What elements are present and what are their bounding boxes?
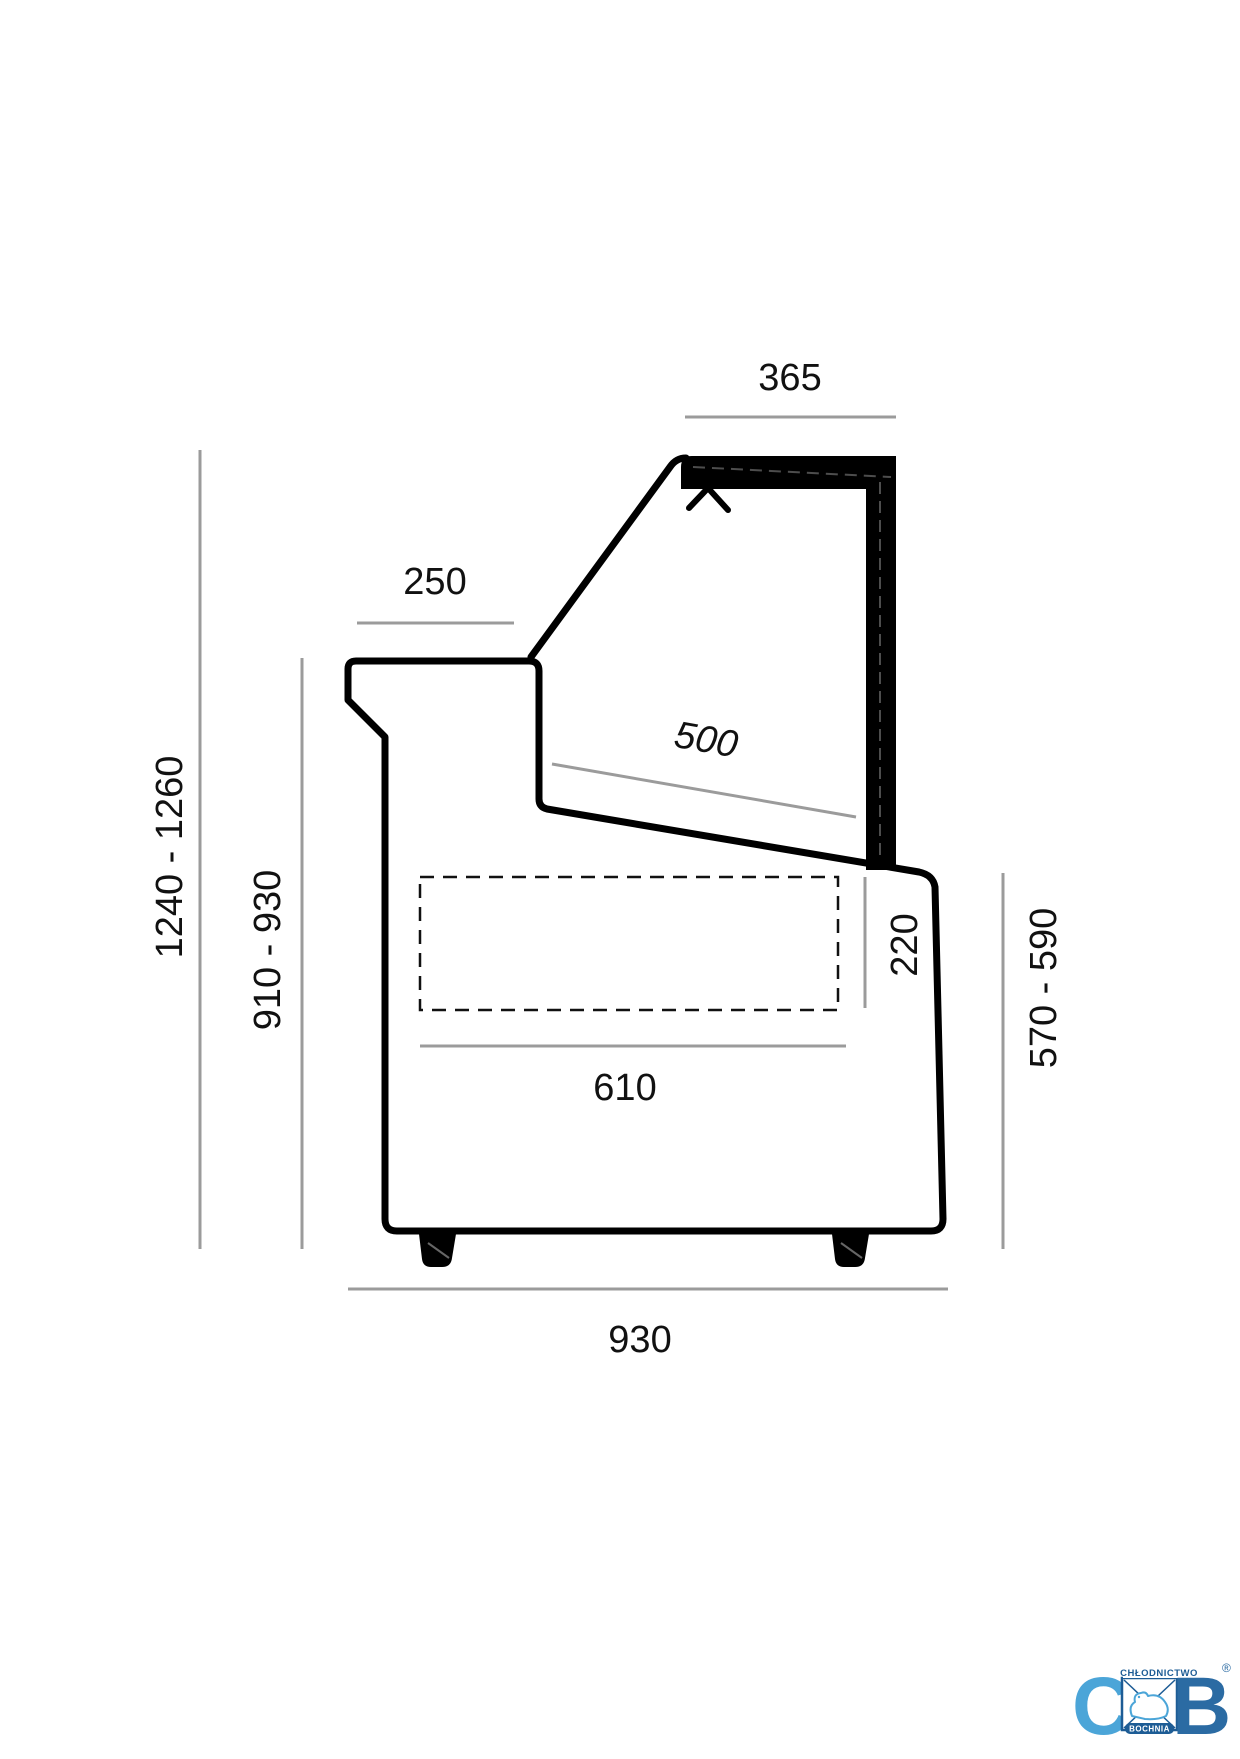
dim-line-deck-500 xyxy=(552,764,856,817)
company-logo: C CHŁODNICTWO BOCHNIA B ® xyxy=(1070,1658,1235,1743)
label-worktop-height: 910 - 930 xyxy=(247,870,289,1031)
label-overall-height: 1240 - 1260 xyxy=(149,756,191,959)
label-overall-depth: 930 xyxy=(608,1319,671,1361)
cabinet-body-outline xyxy=(348,661,943,1231)
airflow-chevron-icon xyxy=(689,488,728,510)
label-base-depth: 610 xyxy=(593,1067,656,1109)
technical-drawing-page: 365 250 500 1240 - 1260 910 - 930 220 61… xyxy=(0,0,1240,1754)
sloped-glass-line xyxy=(531,458,686,657)
counter-cross-section-diagram: 365 250 500 1240 - 1260 910 - 930 220 61… xyxy=(0,0,1240,1754)
label-front-panel-height: 570 - 590 xyxy=(1023,908,1065,1069)
label-canopy-width: 365 xyxy=(758,357,821,399)
label-rear-worktop-depth: 250 xyxy=(403,561,466,603)
logo-registered-mark: ® xyxy=(1222,1661,1231,1675)
internal-well-dashed-rect xyxy=(420,877,838,1010)
label-well-height: 220 xyxy=(884,913,926,976)
label-display-deck-depth: 500 xyxy=(671,714,741,766)
logo-bottom-label: BOCHNIA xyxy=(1129,1725,1170,1734)
